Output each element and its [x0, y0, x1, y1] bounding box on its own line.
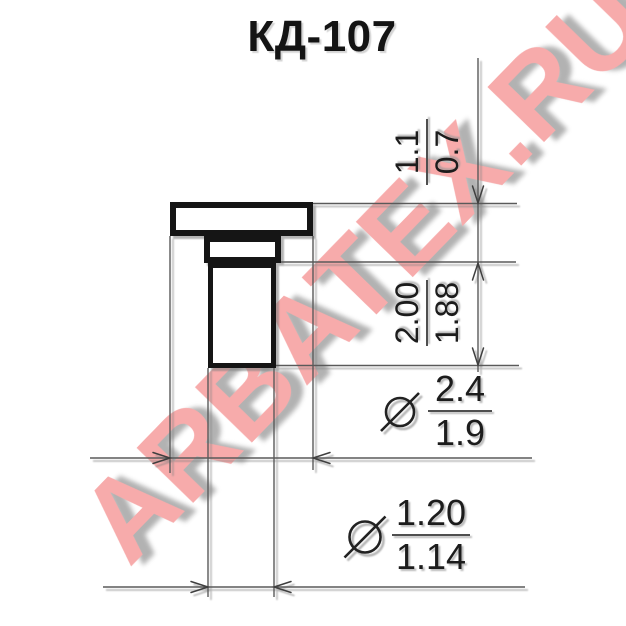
dim-case-height: 2.00 1.88 [390, 268, 464, 358]
dim-lead-diameter: 1.20 1.14 [381, 493, 481, 577]
fraction-bar [426, 119, 428, 185]
technical-drawing [0, 0, 626, 626]
component-outline [173, 205, 310, 366]
fraction-bar [426, 280, 428, 346]
dim-lead-diameter-max: 1.20 [396, 493, 466, 533]
body-shape [211, 266, 274, 366]
dim-flange-height: 1.1 0.7 [390, 107, 464, 197]
dim-case-height-min: 1.88 [430, 282, 464, 344]
diameter-symbol-lead [345, 517, 386, 558]
part-title: КД-107 [162, 15, 482, 59]
dim-flange-height-max: 1.1 [390, 130, 424, 174]
collar-shape [207, 239, 278, 260]
dim-lead-diameter-min: 1.14 [396, 537, 466, 577]
dim-flange-height-min: 0.7 [430, 130, 464, 174]
flange-shape [173, 205, 310, 233]
diameter-symbol-flange [381, 393, 419, 431]
dim-flange-diameter: 2.4 1.9 [420, 369, 500, 453]
dim-flange-diameter-max: 2.4 [435, 369, 485, 409]
dim-flange-diameter-min: 1.9 [435, 413, 485, 453]
drawing-canvas: ARBATEX.RU [0, 0, 626, 626]
dim-case-height-max: 2.00 [390, 282, 424, 344]
